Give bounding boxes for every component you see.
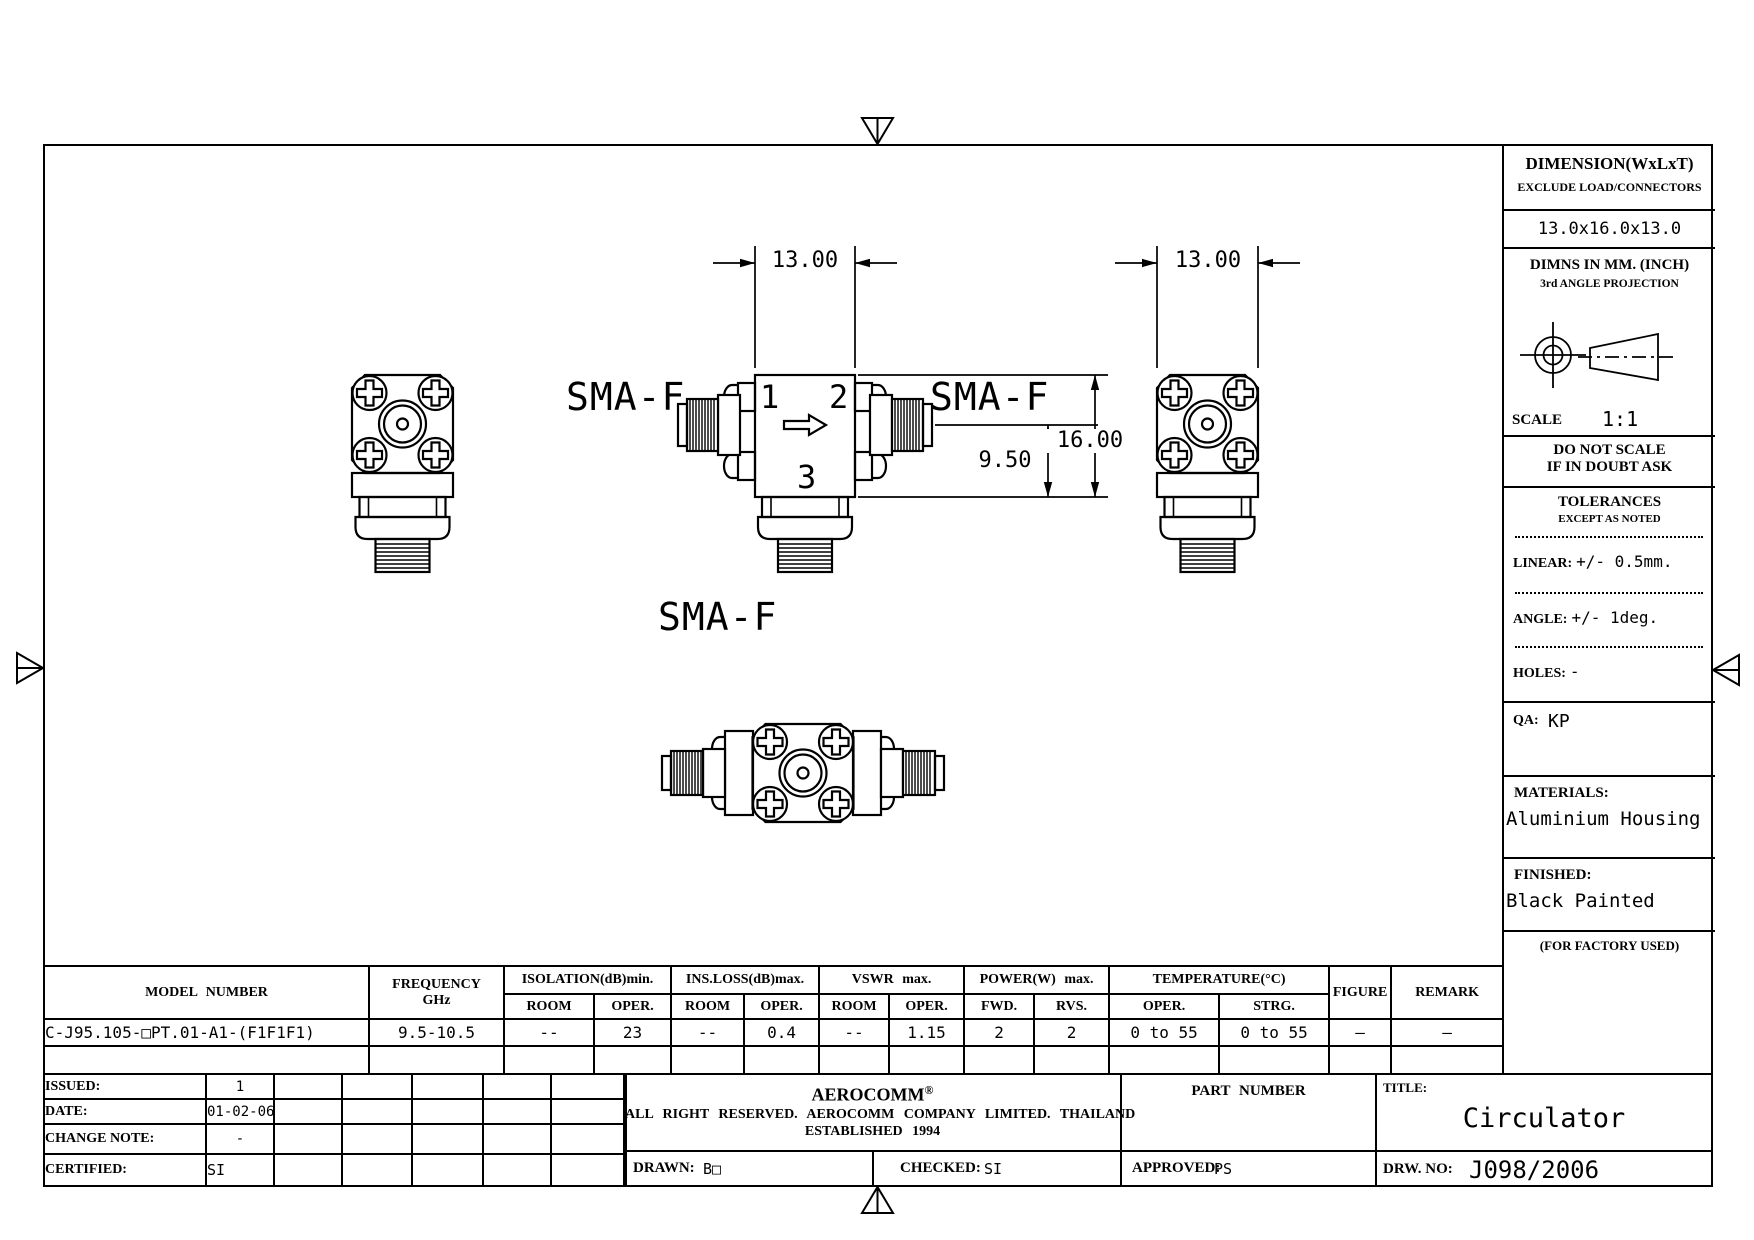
spec-cell: --	[819, 1019, 889, 1046]
sub-header: ROOM	[819, 994, 889, 1019]
part-number-label: PART NUMBER	[1122, 1075, 1375, 1100]
empty-cell	[1109, 1046, 1219, 1074]
do-not-scale-section: DO NOT SCALE IF IN DOUBT ASK	[1504, 437, 1715, 488]
title-box: TITLE: Circulator	[1375, 1073, 1713, 1152]
dim-13-side: 13.00	[1156, 249, 1260, 273]
spec-cell: 0 to 55	[1219, 1019, 1329, 1046]
sub-header: FWD.	[964, 994, 1034, 1019]
finished-section: FINISHED: Black Painted	[1504, 859, 1715, 932]
empty-cell	[819, 1046, 889, 1074]
sma-f-label-right: SMA-F	[930, 378, 1049, 416]
right-title-panel: DIMENSION(WxLxT) EXCLUDE LOAD/CONNECTORS…	[1502, 144, 1713, 1073]
issued-value: 1	[206, 1074, 274, 1099]
empty-cell	[369, 1046, 504, 1074]
revision-table: ISSUED: 1 DATE: 01-02-06 CHANGE NOTE: - …	[43, 1073, 627, 1187]
drw-no-label: DRW. NO:	[1383, 1161, 1453, 1178]
certified-value: SI	[206, 1154, 274, 1186]
frequency-header-line2: GHz	[370, 993, 503, 1009]
power-header: POWER(W) max.	[964, 966, 1109, 994]
dim-16: 16.00	[1042, 429, 1138, 453]
spec-cell: 2	[964, 1019, 1034, 1046]
qa-label: QA:	[1513, 713, 1539, 729]
date-value: 01-02-06	[206, 1099, 274, 1124]
sub-header: OPER.	[889, 994, 964, 1019]
no-scale-line1: DO NOT SCALE	[1504, 437, 1715, 459]
linear-tolerance: LINEAR: +/- 0.5mm.	[1513, 552, 1672, 572]
sub-header: ROOM	[671, 994, 744, 1019]
angle-value: +/- 1deg.	[1571, 608, 1658, 627]
sub-header: OPER.	[594, 994, 671, 1019]
empty-cell	[1034, 1046, 1109, 1074]
empty-cell	[1391, 1046, 1503, 1074]
figure-header: FIGURE	[1329, 966, 1391, 1019]
company-rights-line: ALL RIGHT RESERVED. AEROCOMM COMPANY LIM…	[625, 1105, 1120, 1123]
sma-f-label-left: SMA-F	[566, 378, 685, 416]
spec-cell: 2	[1034, 1019, 1109, 1046]
divider-dots	[1515, 646, 1703, 648]
empty-cell	[504, 1046, 594, 1074]
empty-cell	[342, 1074, 412, 1099]
frequency-header-line1: FREQUENCY	[370, 977, 503, 993]
spec-cell: 0 to 55	[1109, 1019, 1219, 1046]
holes-label: HOLES:	[1513, 666, 1566, 681]
drw-no-value: J098/2006	[1469, 1156, 1599, 1184]
tolerances-section: TOLERANCES EXCEPT AS NOTED LINEAR: +/- 0…	[1504, 488, 1715, 703]
units-note: DIMNS IN MM. (INCH)	[1504, 249, 1715, 274]
empty-cell	[342, 1124, 412, 1154]
empty-cell	[964, 1046, 1034, 1074]
projection-note: 3rd ANGLE PROJECTION	[1504, 274, 1715, 290]
drawn-value: B□	[703, 1160, 721, 1178]
empty-cell	[1219, 1046, 1329, 1074]
isolation-header: ISOLATION(dB)min.	[504, 966, 671, 994]
empty-cell	[594, 1046, 671, 1074]
sub-header: STRG.	[1219, 994, 1329, 1019]
spec-cell: —	[1391, 1019, 1503, 1046]
empty-cell	[44, 1046, 369, 1074]
angle-tolerance: ANGLE: +/- 1deg.	[1513, 608, 1658, 628]
empty-cell	[483, 1074, 551, 1099]
finished-value: Black Painted	[1504, 884, 1715, 912]
empty-cell	[551, 1124, 626, 1154]
empty-cell	[274, 1154, 342, 1186]
empty-cell	[551, 1074, 626, 1099]
dimension-value-section: 13.0x16.0x13.0	[1504, 211, 1715, 249]
spec-cell: 23	[594, 1019, 671, 1046]
company-name: AEROCOMM	[812, 1084, 925, 1104]
empty-cell	[671, 1046, 744, 1074]
no-scale-line2: IF IN DOUBT ASK	[1504, 459, 1715, 476]
spec-cell: 1.15	[889, 1019, 964, 1046]
date-label: DATE:	[44, 1099, 206, 1124]
empty-cell	[412, 1154, 483, 1186]
approved-value: PS	[1214, 1160, 1232, 1178]
company-box: AEROCOMM® ALL RIGHT RESERVED. AEROCOMM C…	[623, 1073, 1122, 1152]
sub-header: OPER.	[744, 994, 819, 1019]
empty-cell	[551, 1099, 626, 1124]
linear-label: LINEAR:	[1513, 556, 1572, 571]
empty-cell	[483, 1124, 551, 1154]
company-name-line: AEROCOMM®	[625, 1075, 1120, 1105]
divider-dots	[1515, 536, 1703, 538]
finished-label: FINISHED:	[1504, 859, 1715, 884]
angle-label: ANGLE:	[1513, 612, 1567, 627]
empty-cell	[342, 1099, 412, 1124]
holes-tolerance: HOLES: -	[1513, 662, 1580, 682]
ins-loss-header: INS.LOSS(dB)max.	[671, 966, 819, 994]
certified-label: CERTIFIED:	[44, 1154, 206, 1186]
checked-label: CHECKED:	[900, 1160, 981, 1177]
dimension-label: DIMENSION(WxLxT)	[1504, 144, 1715, 174]
sub-header: ROOM	[504, 994, 594, 1019]
model-number-value: C-J95.105-□PT.01-A1-(F1F1F1)	[44, 1019, 369, 1046]
dim-13-front: 13.00	[753, 249, 857, 273]
sma-f-label-bottom: SMA-F	[658, 598, 777, 636]
factory-section: (FOR FACTORY USED)	[1504, 932, 1715, 1073]
empty-cell	[274, 1074, 342, 1099]
checked-box: CHECKED: SI	[872, 1150, 1122, 1187]
empty-cell	[342, 1154, 412, 1186]
drawn-label: DRAWN:	[633, 1160, 695, 1177]
company-established-line: ESTABLISHED 1994	[625, 1123, 1120, 1140]
frequency-header: FREQUENCY GHz	[369, 966, 504, 1019]
registered-mark-icon: ®	[925, 1083, 934, 1097]
checked-value: SI	[984, 1160, 1002, 1178]
empty-cell	[483, 1099, 551, 1124]
vswr-header: VSWR max.	[819, 966, 964, 994]
empty-cell	[274, 1099, 342, 1124]
scale-label: SCALE	[1512, 412, 1562, 429]
spec-cell: --	[504, 1019, 594, 1046]
holes-value: -	[1570, 662, 1580, 681]
port-2-label: 2	[829, 381, 848, 413]
title-label: TITLE:	[1383, 1080, 1427, 1096]
exclude-note: EXCLUDE LOAD/CONNECTORS	[1504, 174, 1715, 195]
spec-cell: —	[1329, 1019, 1391, 1046]
spec-table: MODEL NUMBER FREQUENCY GHz ISOLATION(dB)…	[43, 965, 1504, 1075]
drawing-sheet: SMA-F SMA-F SMA-F 1 2 3 13.00 13.00 16.0…	[0, 0, 1754, 1240]
spec-cell: 0.4	[744, 1019, 819, 1046]
tolerances-note: EXCEPT AS NOTED	[1504, 511, 1715, 525]
empty-cell	[889, 1046, 964, 1074]
frequency-value: 9.5-10.5	[369, 1019, 504, 1046]
materials-section: MATERIALS: Aluminium Housing	[1504, 777, 1715, 859]
change-note-value: -	[206, 1124, 274, 1154]
materials-label: MATERIALS:	[1504, 777, 1715, 802]
tolerances-title: TOLERANCES	[1504, 488, 1715, 511]
projection-section: DIMNS IN MM. (INCH) 3rd ANGLE PROJECTION…	[1504, 249, 1715, 437]
change-note-label: CHANGE NOTE:	[44, 1124, 206, 1154]
port-1-label: 1	[760, 381, 779, 413]
model-number-header: MODEL NUMBER	[44, 966, 369, 1019]
port-3-label: 3	[797, 461, 816, 493]
part-number-box: PART NUMBER	[1120, 1073, 1377, 1152]
remark-header: REMARK	[1391, 966, 1503, 1019]
empty-cell	[483, 1154, 551, 1186]
empty-cell	[412, 1124, 483, 1154]
dimension-value: 13.0x16.0x13.0	[1504, 211, 1715, 247]
empty-cell	[412, 1074, 483, 1099]
spec-cell: --	[671, 1019, 744, 1046]
dimension-section: DIMENSION(WxLxT) EXCLUDE LOAD/CONNECTORS	[1504, 144, 1715, 211]
factory-note: (FOR FACTORY USED)	[1504, 932, 1715, 954]
empty-cell	[412, 1099, 483, 1124]
empty-cell	[551, 1154, 626, 1186]
scale-value: 1:1	[1602, 407, 1638, 431]
issued-label: ISSUED:	[44, 1074, 206, 1099]
title-value: Circulator	[1377, 1075, 1711, 1134]
materials-value: Aluminium Housing	[1504, 802, 1715, 830]
dim-9-5: 9.50	[966, 449, 1044, 473]
drawn-box: DRAWN: B□	[623, 1150, 874, 1187]
drw-no-box: DRW. NO: J098/2006	[1375, 1150, 1713, 1187]
approved-box: APPROVED: PS	[1120, 1150, 1377, 1187]
qa-value: KP	[1548, 711, 1570, 732]
empty-cell	[1329, 1046, 1391, 1074]
sub-header: OPER.	[1109, 994, 1219, 1019]
empty-cell	[274, 1124, 342, 1154]
approved-label: APPROVED:	[1132, 1160, 1220, 1177]
empty-cell	[744, 1046, 819, 1074]
divider-dots	[1515, 592, 1703, 594]
qa-section: QA: KP	[1504, 703, 1715, 777]
linear-value: +/- 0.5mm.	[1576, 552, 1672, 571]
sub-header: RVS.	[1034, 994, 1109, 1019]
temperature-header: TEMPERATURE(°C)	[1109, 966, 1329, 994]
